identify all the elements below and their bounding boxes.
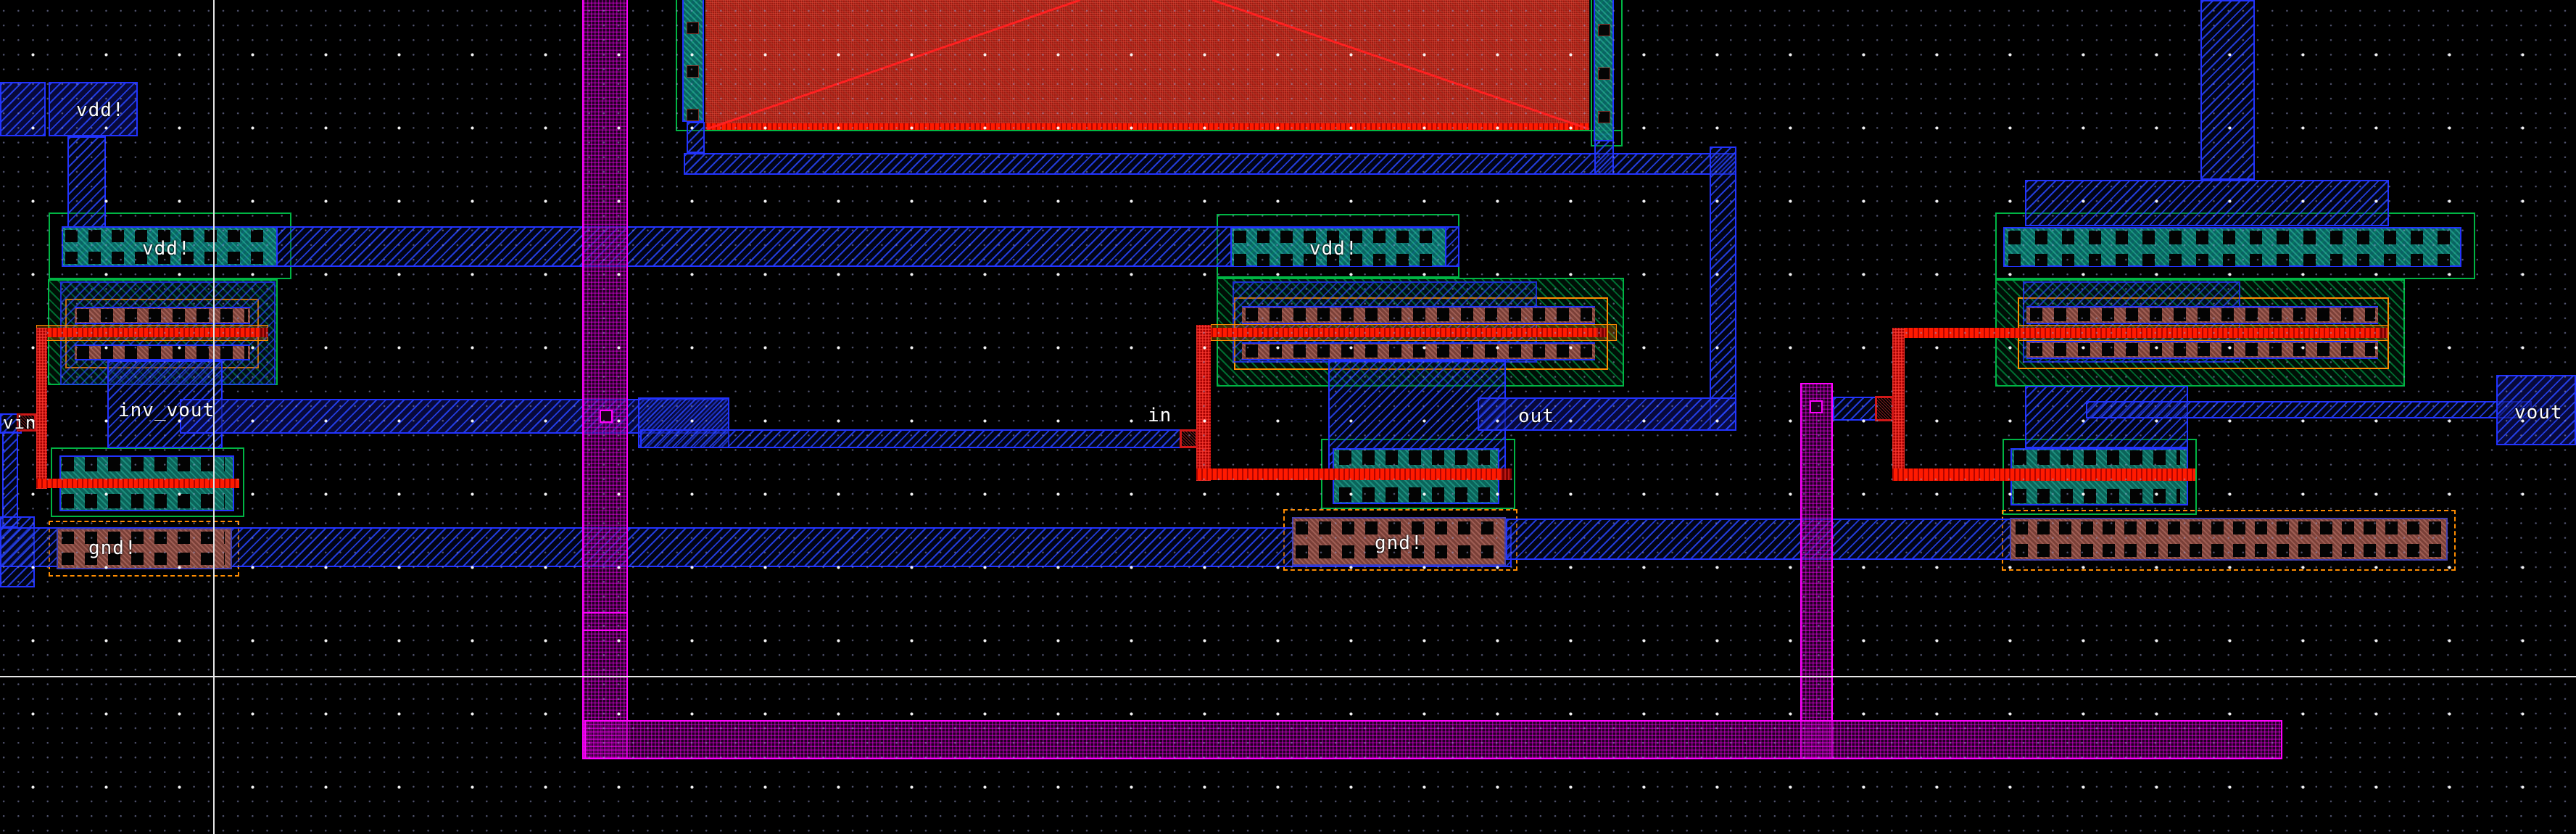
- right-gate-poly-via[interactable]: [1875, 396, 1894, 421]
- label-vdd-left[interactable]: vdd!: [142, 239, 191, 258]
- vdd-feed-strip-right[interactable]: [2200, 0, 2255, 180]
- contact: [687, 22, 699, 34]
- contact-row: [1339, 450, 1490, 465]
- contact-row: [1246, 344, 1592, 358]
- contact: [687, 65, 699, 78]
- poly-vert-mid[interactable]: [1196, 325, 1211, 481]
- label-out[interactable]: out: [1518, 407, 1554, 426]
- contact-row: [77, 309, 248, 322]
- contact-row: [77, 346, 248, 359]
- contact-row: [2016, 544, 2442, 557]
- label-vin[interactable]: vin: [3, 413, 36, 432]
- contact: [1598, 67, 1610, 80]
- layout-canvas[interactable]: vdd! vdd! vin inv_vout gnd! vdd! in out …: [0, 0, 2576, 834]
- poly-vert-left[interactable]: [36, 328, 47, 489]
- cap-stub-left[interactable]: [687, 122, 705, 153]
- vout-rail[interactable]: [2086, 401, 2532, 418]
- m1-m2-via-left[interactable]: [600, 410, 613, 423]
- gate-cap: [2379, 328, 2387, 338]
- gate-mid-nmos[interactable]: [1196, 468, 1501, 480]
- contact-row: [2008, 231, 2456, 244]
- gate-right-nmos[interactable]: [1892, 468, 2195, 481]
- contact: [687, 109, 699, 121]
- contact-row: [2016, 521, 2442, 534]
- contact-row: [2030, 308, 2375, 321]
- m2-seam: [584, 612, 626, 614]
- contact-row: [1339, 487, 1490, 502]
- label-gnd-mid[interactable]: gnd!: [1375, 534, 1423, 553]
- crosshair-hline: [0, 676, 2576, 677]
- contact-row: [2014, 450, 2180, 465]
- contact-row: [62, 494, 225, 508]
- gate-left-nmos[interactable]: [36, 479, 239, 488]
- label-inv-vout[interactable]: inv_vout: [118, 401, 215, 420]
- contact: [1598, 24, 1610, 36]
- right-gate-stub[interactable]: [1833, 397, 1878, 421]
- gate-cap: [259, 328, 268, 337]
- cap-out-rail[interactable]: [684, 153, 1736, 175]
- in-poly-via[interactable]: [1180, 429, 1198, 448]
- gate-right-pmos[interactable]: [1892, 328, 2379, 338]
- contact-row: [62, 553, 225, 565]
- cap-x-mark: [705, 0, 1589, 125]
- out-vstrip[interactable]: [1710, 146, 1736, 431]
- contact-row: [2030, 343, 2375, 356]
- contact: [1598, 111, 1610, 123]
- contact-row: [62, 532, 225, 544]
- out-rail[interactable]: [1478, 397, 1736, 431]
- poly-vert-right[interactable]: [1892, 328, 1905, 481]
- gate-left-pmos[interactable]: [36, 328, 259, 337]
- vdd-label-pad-a[interactable]: [0, 82, 46, 136]
- m2-vert-left[interactable]: [582, 0, 628, 759]
- m2-bottom-bus[interactable]: [584, 720, 2282, 759]
- contact-row: [1246, 308, 1592, 321]
- m1-m2-via-right[interactable]: [1810, 400, 1823, 413]
- contact-row: [2008, 254, 2456, 266]
- label-vdd-mid[interactable]: vdd!: [1309, 239, 1358, 258]
- label-vdd-top[interactable]: vdd!: [76, 101, 125, 120]
- m2-vert-right[interactable]: [1800, 383, 1833, 759]
- vdd-slab-right[interactable]: [2025, 180, 2389, 226]
- cap-contact-strip-left[interactable]: [682, 0, 704, 122]
- gate-cap: [1501, 468, 1512, 480]
- label-gnd-left[interactable]: gnd!: [88, 539, 137, 558]
- label-in[interactable]: in: [1148, 406, 1172, 425]
- label-vout[interactable]: vout: [2514, 403, 2563, 422]
- vdd-feed-strip-left[interactable]: [67, 136, 106, 228]
- gate-mid-pmos[interactable]: [1196, 328, 1596, 337]
- gate-cap: [1596, 328, 1607, 337]
- vin-drop-strip[interactable]: [2, 432, 18, 527]
- in-wire[interactable]: [640, 429, 1196, 448]
- contact-row: [62, 457, 225, 471]
- m2-seam: [584, 629, 626, 631]
- contact-row: [2014, 489, 2180, 503]
